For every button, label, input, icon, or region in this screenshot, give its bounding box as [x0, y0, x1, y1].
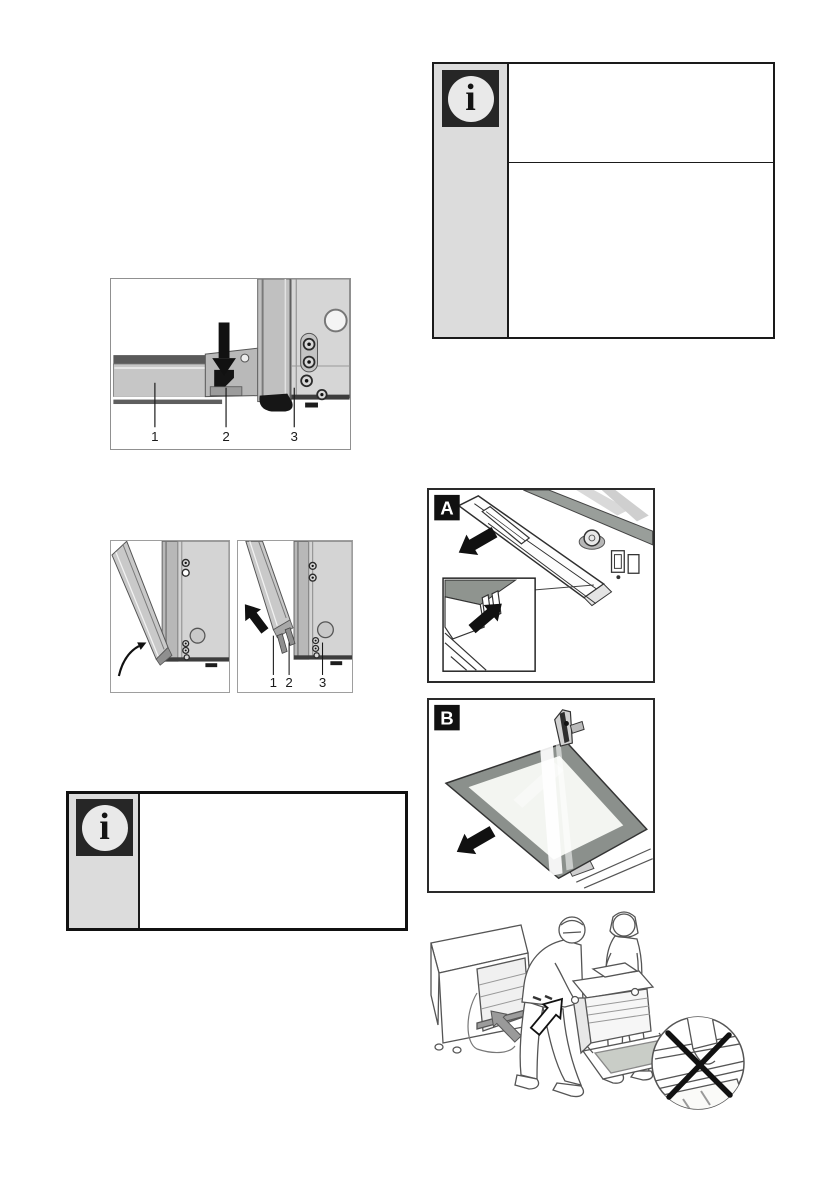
figure-glass-removal-drawing: B	[429, 700, 653, 891]
figure-carry-oven-drawing	[425, 903, 755, 1125]
arrow-down-left-icon	[457, 826, 496, 854]
panel-label-a: A	[440, 497, 453, 518]
oven-fascia	[291, 279, 349, 407]
hand	[632, 989, 639, 996]
callout-2: 2	[222, 429, 229, 444]
screw-icon	[584, 530, 600, 546]
figure-carry-oven	[425, 903, 755, 1125]
callout-3: 3	[319, 675, 326, 690]
callout-2: 2	[285, 675, 292, 690]
door-frame-edge	[258, 279, 292, 402]
info-icon: i	[76, 799, 133, 856]
figure-door-tilt-drawing	[111, 541, 229, 692]
arrow-up-left-icon	[245, 604, 269, 633]
info-icon-glyph: i	[465, 79, 476, 117]
figure-door-tilt	[110, 540, 230, 693]
figure-trim-removal: A	[427, 488, 655, 683]
hinge-lock-lever	[205, 348, 257, 396]
figure-hinge-lock: 1 2 3	[110, 278, 351, 450]
info-note-body	[509, 64, 773, 337]
info-note-section-2-text	[509, 163, 773, 175]
info-note-section-1-text	[509, 64, 773, 76]
info-note-top: i	[432, 62, 775, 339]
knob-hole	[325, 310, 347, 332]
figure-glass-removal: B	[427, 698, 655, 893]
hinge	[555, 710, 584, 746]
info-icon-circle: i	[448, 76, 494, 122]
oven-front	[162, 541, 229, 667]
trim-latch	[612, 551, 639, 579]
glass-pane	[446, 742, 647, 878]
inset-detail	[443, 578, 535, 671]
info-note-section-2	[509, 163, 773, 337]
info-note-sidebar: i	[69, 794, 140, 928]
figure-hinge-lock-drawing: 1 2 3	[111, 279, 350, 449]
figure-trim-removal-drawing: A	[429, 490, 653, 681]
no-carry-detail	[652, 1011, 747, 1125]
info-note-section-1	[509, 64, 773, 163]
info-note-sidebar: i	[434, 64, 509, 337]
manual-page: { "page": {"width": 840, "height": 1190,…	[0, 0, 840, 1190]
info-note-bottom: i	[66, 791, 408, 931]
info-note-body	[140, 794, 405, 928]
info-icon: i	[442, 70, 499, 127]
figure-door-lift-drawing: 1 2 3	[238, 541, 352, 692]
arrow-down-left-icon	[459, 527, 498, 555]
lifted-door	[246, 541, 295, 653]
info-icon-circle: i	[82, 805, 128, 851]
curved-arrow-icon	[119, 642, 147, 676]
callout-3: 3	[291, 429, 298, 444]
info-note-text	[140, 794, 405, 806]
figure-door-lift: 1 2 3	[237, 540, 353, 693]
callout-1: 1	[270, 675, 277, 690]
hinge-hook	[259, 394, 292, 412]
panel-label-b: B	[440, 707, 453, 728]
hand	[572, 997, 579, 1004]
info-icon-glyph: i	[99, 808, 110, 846]
callout-1: 1	[151, 429, 158, 444]
